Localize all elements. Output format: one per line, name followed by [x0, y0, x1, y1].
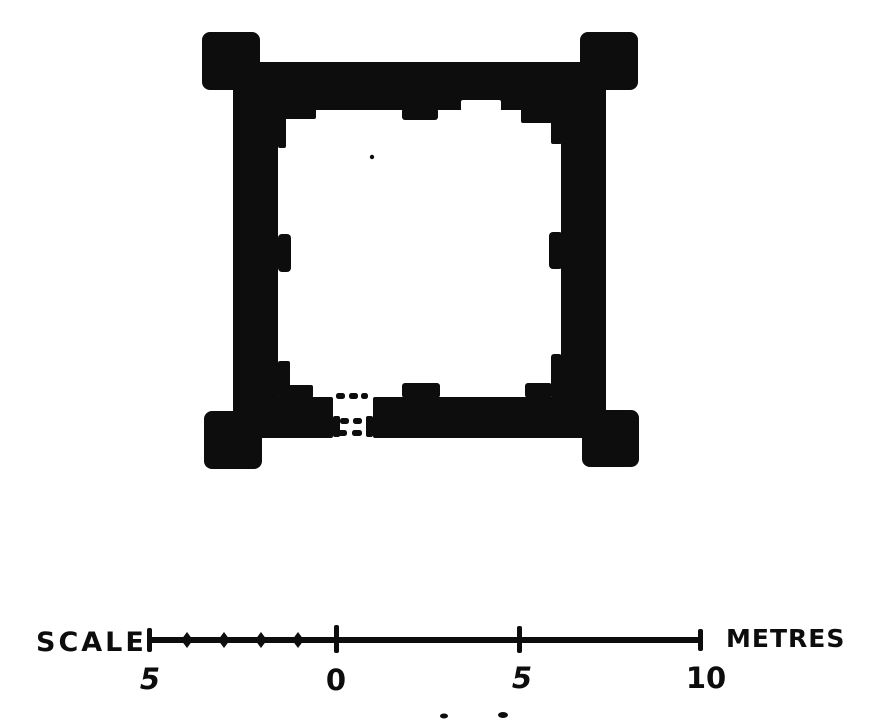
door-dash	[352, 430, 362, 436]
doorway-dashes	[336, 393, 368, 436]
keep-plan	[202, 32, 639, 719]
wall-recess-north	[461, 100, 501, 111]
pilaster-west-mid	[278, 234, 291, 272]
door-dash	[336, 393, 345, 399]
wall-east	[561, 62, 606, 437]
door-dash	[340, 418, 349, 424]
scale-tick-label-5-left: 5	[140, 662, 160, 696]
wall-north	[233, 62, 606, 110]
door-dash	[337, 430, 347, 436]
scale-bar-end-serif-right	[698, 629, 703, 651]
plan-drawing: SCALE METRES 5 0 5 10	[0, 0, 869, 720]
scale-unit-label: METRES	[726, 624, 845, 653]
door-jamb-right-foot	[366, 416, 373, 437]
pilaster-west-door-step	[278, 385, 313, 398]
wall-south-right-of-door	[373, 397, 606, 438]
scale-tick-label-10: 10	[686, 661, 726, 695]
door-dash	[353, 418, 362, 424]
inner-pilasters	[278, 108, 563, 398]
pilaster-east-mid	[549, 232, 563, 269]
wall-west	[233, 62, 278, 437]
scale-bar-major-tick-five	[517, 626, 522, 653]
pilaster-north-mid	[402, 108, 438, 120]
interior-ink-dot	[370, 155, 374, 159]
corner-buttress-bottom-left	[204, 411, 262, 469]
pilaster-north-east-chunk	[551, 108, 562, 144]
corner-buttress-top-right	[580, 32, 638, 90]
corner-buttress-top-left	[202, 32, 260, 90]
scale-bar-line	[148, 637, 703, 643]
pilaster-west-lower-step	[278, 361, 290, 388]
scale-bar: SCALE METRES 5 0 5 10	[36, 624, 845, 697]
door-dash	[349, 393, 358, 399]
figure-plate: SCALE METRES 5 0 5 10	[0, 0, 869, 720]
scale-title: SCALE	[36, 627, 147, 658]
pilaster-south-east	[525, 383, 552, 398]
door-dash	[361, 393, 368, 399]
scale-bar-major-tick-zero	[334, 625, 339, 653]
pilaster-north-west-chunk	[278, 108, 286, 148]
pilaster-south-mid	[402, 383, 440, 398]
edge-ink-speck	[498, 712, 508, 718]
scale-tick-label-5-right: 5	[512, 661, 532, 695]
edge-ink-speck	[440, 714, 448, 719]
scale-bar-end-serif-left	[147, 628, 152, 652]
scale-tick-label-0: 0	[326, 663, 346, 697]
corner-buttress-bottom-right	[582, 410, 639, 467]
pilaster-east-lower	[551, 354, 562, 398]
